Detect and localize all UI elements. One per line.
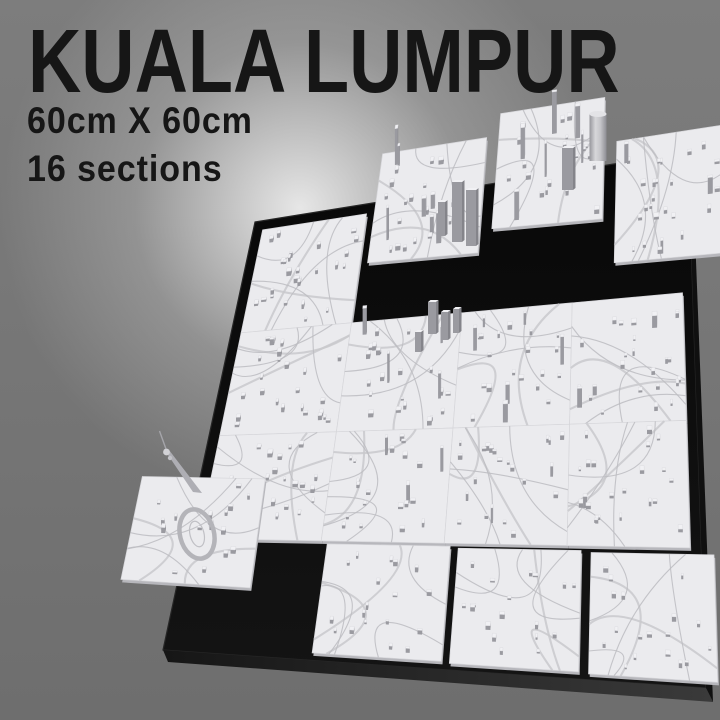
city-model-3d-render xyxy=(0,0,720,720)
map-section xyxy=(312,544,451,665)
map-section xyxy=(121,477,267,591)
product-image: KUALA LUMPUR 60cm X 60cm 16 sections xyxy=(0,0,720,720)
map-section xyxy=(453,303,573,431)
map-section xyxy=(220,323,353,439)
city-model-svg xyxy=(0,0,720,720)
map-section xyxy=(449,548,582,675)
map-section xyxy=(444,424,571,548)
map-section xyxy=(492,90,606,232)
map-section xyxy=(567,420,691,551)
cylindrical-skyscraper xyxy=(590,114,607,161)
map-section xyxy=(570,293,688,427)
map-section xyxy=(321,428,454,546)
map-section xyxy=(589,553,719,686)
map-section xyxy=(614,125,720,265)
